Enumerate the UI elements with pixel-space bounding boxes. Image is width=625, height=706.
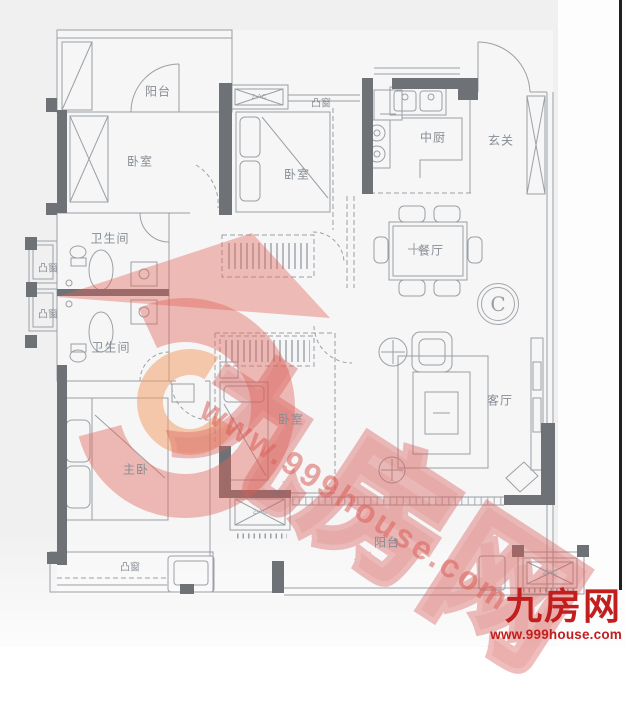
- room-label-bay-left-upper: 凸窗: [38, 260, 58, 275]
- room-label-bedroom-top-mid: 卧室: [284, 166, 310, 183]
- site-logo: 九房网 www.999house.com: [422, 588, 622, 642]
- page-edge-line: [619, 0, 622, 590]
- ac-unit-label-bottom-left: 2-AC: [253, 509, 268, 516]
- room-label-kitchen: 中厨: [420, 129, 446, 146]
- unit-type-letter: C: [481, 287, 515, 321]
- room-label-master: 主卧: [123, 461, 149, 478]
- room-label-bay-top: 凸窗: [311, 95, 331, 110]
- room-label-bay-left-lower: 凸窗: [38, 306, 58, 321]
- room-label-bath-lower: 卫生间: [91, 339, 130, 356]
- room-label-dining: 餐厅: [418, 242, 444, 259]
- room-label-balcony-top: 阳台: [145, 83, 171, 100]
- room-label-living: 客厅: [487, 392, 513, 409]
- room-label-bath-upper: 卫生间: [90, 230, 129, 247]
- ac-unit-label-bottom-right: 2-AC: [543, 570, 558, 577]
- room-label-bedroom-mid: 卧室: [278, 411, 304, 428]
- room-label-bedroom-top-left: 卧室: [127, 153, 153, 170]
- floorplan-page: 九房网 www.999house.com 阳台 卧室 卧室 凸窗 中厨 玄关 卫…: [0, 0, 625, 647]
- unit-type-badge: C: [477, 283, 519, 325]
- site-logo-brand: 九房网: [422, 588, 622, 627]
- site-logo-url: www.999house.com: [422, 627, 622, 642]
- room-label-foyer: 玄关: [488, 132, 514, 149]
- room-label-bay-bottom: 凸窗: [120, 559, 140, 574]
- room-label-balcony-bottom: 阳台: [374, 534, 400, 551]
- ac-unit-label-top: 2-AC: [252, 94, 267, 101]
